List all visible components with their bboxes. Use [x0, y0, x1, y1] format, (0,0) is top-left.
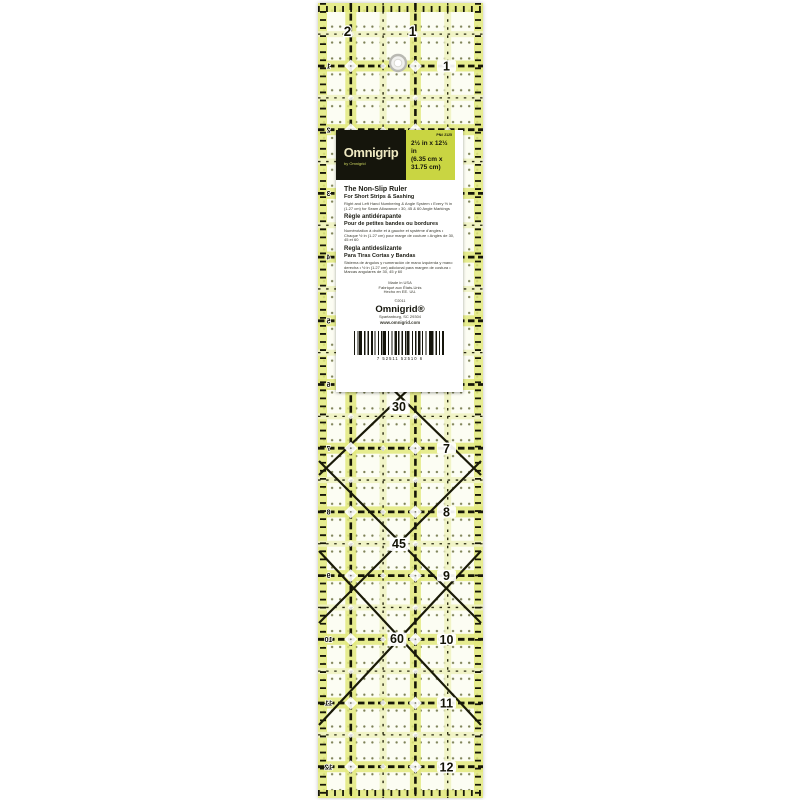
hang-hole-center [394, 59, 402, 67]
left-number-9: 9 [326, 573, 330, 580]
product-subtitle: For Short Strips & Sashing [344, 194, 456, 201]
row-number-10: 10 [440, 633, 454, 647]
intersection-dot [415, 447, 417, 449]
barcode-digits: 7 52511 52510 6 [344, 356, 456, 361]
left-number-5: 5 [326, 318, 330, 325]
intersection-dot [415, 702, 417, 704]
top-number-2: 2 [344, 24, 352, 39]
omnigrip-ruler: 211789101112123456789101112304560 Omnigr… [318, 3, 483, 798]
left-number-3: 3 [326, 191, 330, 198]
label-header: Omnigrip by Omnigrid PN# 2125 2½ in x 12… [336, 130, 455, 180]
intersection-dot [415, 65, 417, 67]
left-number-11: 11 [325, 701, 333, 708]
row-number-12: 12 [440, 760, 454, 774]
left-number-12: 12 [325, 764, 333, 771]
left-number-10: 10 [325, 637, 333, 644]
intersection-dot [350, 575, 352, 577]
left-number-1: 1 [326, 64, 330, 71]
intersection-dot [350, 638, 352, 640]
row-number-7: 7 [443, 442, 450, 456]
size-line-3: 31.75 cm) [411, 164, 455, 172]
size-line-1: 2½ in x 12½ in [411, 140, 455, 156]
angle-number-60: 60 [390, 632, 404, 646]
intersection-dot [350, 65, 352, 67]
company-address: Spartanburg, SC 29304 [344, 315, 456, 320]
row-number-1: 1 [443, 60, 450, 74]
edge-halo-left [318, 3, 327, 798]
left-number-7: 7 [326, 446, 330, 453]
brand-wordmark: Omnigrip [344, 145, 399, 160]
row-number-11: 11 [440, 697, 453, 711]
title-fr: Règle antidérapante [344, 214, 456, 221]
description-es: Sistema de ángulos y numeración de mano … [344, 261, 456, 275]
left-number-4: 4 [326, 255, 330, 262]
left-number-2: 2 [326, 127, 330, 134]
description-fr: Numérotation à droite et à gauche et sys… [344, 229, 456, 243]
intersection-dot [415, 575, 417, 577]
intersection-dot [350, 511, 352, 513]
row-number-9: 9 [443, 569, 450, 583]
size-text: 2½ in x 12½ in (6.35 cm x 31.75 cm) [406, 137, 455, 172]
subtitle-fr: Pour de petites bandes ou bordures [344, 221, 456, 228]
brand-box: Omnigrip by Omnigrid [336, 130, 406, 180]
left-number-6: 6 [326, 382, 330, 389]
title-es: Regla antideslizante [344, 246, 456, 253]
brand-subtext: by Omnigrid [336, 161, 366, 166]
intersection-dot [415, 766, 417, 768]
row-number-8: 8 [443, 506, 450, 520]
intersection-dot [350, 766, 352, 768]
angle-number-30: 30 [392, 400, 406, 414]
subtitle-es: Para Tiras Cortas y Bandas [344, 253, 456, 260]
barcode [354, 331, 446, 355]
left-number-8: 8 [326, 510, 330, 517]
top-number-1: 1 [409, 24, 417, 39]
edge-halo-right [474, 3, 483, 798]
product-label: Omnigrip by Omnigrid PN# 2125 2½ in x 12… [336, 130, 463, 392]
angle-number-45: 45 [392, 537, 406, 551]
product-photo: 211789101112123456789101112304560 Omnigr… [0, 0, 800, 800]
ruler-grid: 211789101112123456789101112304560 [318, 3, 483, 798]
intersection-dot [350, 702, 352, 704]
company-website: www.omnigrid.com [344, 321, 456, 326]
intersection-dot [415, 638, 417, 640]
label-body: The Non-Slip Ruler For Short Strips & Sa… [336, 180, 463, 361]
description-en: Right and Left Hand Numbering & Angle Sy… [344, 202, 456, 211]
product-title: The Non-Slip Ruler [344, 186, 456, 194]
intersection-dot [350, 447, 352, 449]
intersection-dot [415, 511, 417, 513]
made-in-line-3: Hecho en EE. UU. [344, 290, 456, 295]
size-line-2: (6.35 cm x [411, 156, 455, 164]
size-box: PN# 2125 2½ in x 12½ in (6.35 cm x 31.75… [406, 130, 455, 180]
